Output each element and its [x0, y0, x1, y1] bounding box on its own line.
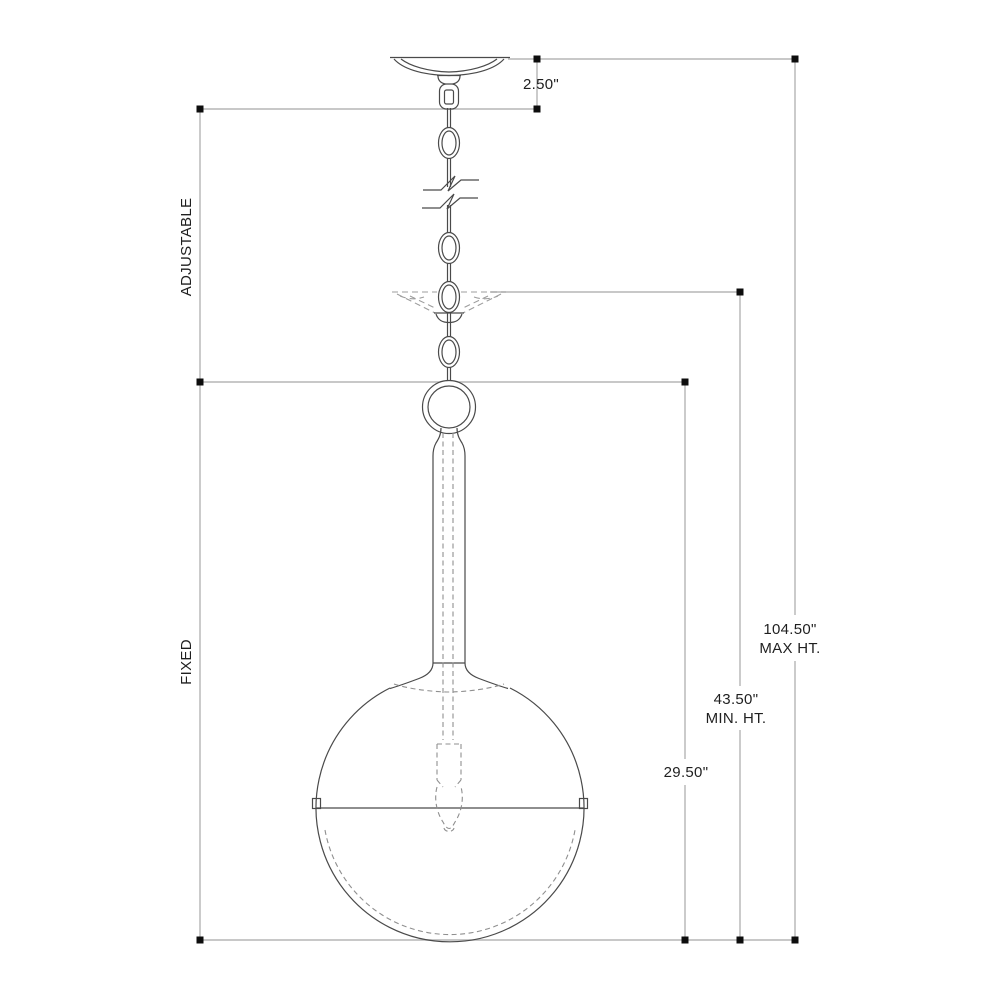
dimension-labels: 2.50" ADJUSTABLE FIXED 104.50" MAX HT. 4…: [178, 76, 821, 781]
bulb-and-socket: [436, 744, 463, 831]
fixture-height-label: 29.50": [664, 764, 709, 781]
adjustable-label: ADJUSTABLE: [178, 198, 195, 297]
dimension-drawing-canvas: 2.50" ADJUSTABLE FIXED 104.50" MAX HT. 4…: [0, 0, 1000, 1000]
suspension-chain-lower: [439, 282, 460, 368]
pendant-drawing-svg: 2.50" ADJUSTABLE FIXED 104.50" MAX HT. 4…: [0, 0, 1000, 1000]
min-height-value: 43.50": [714, 691, 759, 708]
hanging-ring: [423, 381, 476, 434]
glass-globe: [313, 688, 588, 942]
fixed-label: FIXED: [178, 639, 195, 685]
loop-holder: [440, 84, 459, 109]
min-height-caption: MIN. HT.: [706, 710, 767, 727]
canopy-height-label: 2.50": [523, 76, 559, 93]
dimension-terminators: [197, 56, 799, 944]
chain-break-symbol: [422, 176, 479, 209]
stem: [390, 428, 508, 740]
max-height-caption: MAX HT.: [759, 640, 820, 657]
max-height-value: 104.50": [763, 621, 816, 638]
ceiling-canopy: [390, 58, 510, 110]
